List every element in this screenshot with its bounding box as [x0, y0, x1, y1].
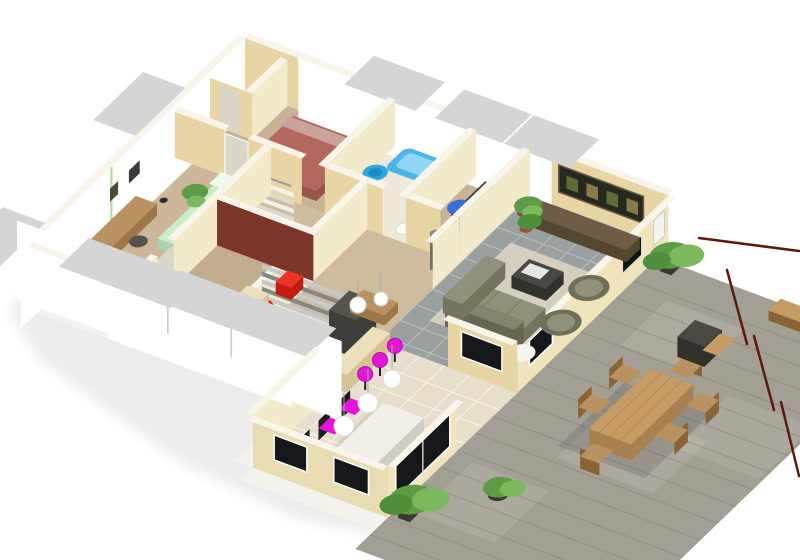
pendant-sphere [383, 370, 401, 388]
floor-plan-stage [0, 0, 800, 560]
floor-plan-rendering [0, 0, 800, 560]
pendant-sphere [334, 416, 354, 436]
fence-rail [699, 238, 799, 251]
pendant-sphere [358, 393, 378, 413]
stool-seat [387, 338, 402, 353]
pendant-sphere [350, 297, 366, 313]
stool-seat [358, 367, 373, 382]
stool-seat [373, 353, 388, 368]
pendant-sphere [374, 292, 388, 306]
